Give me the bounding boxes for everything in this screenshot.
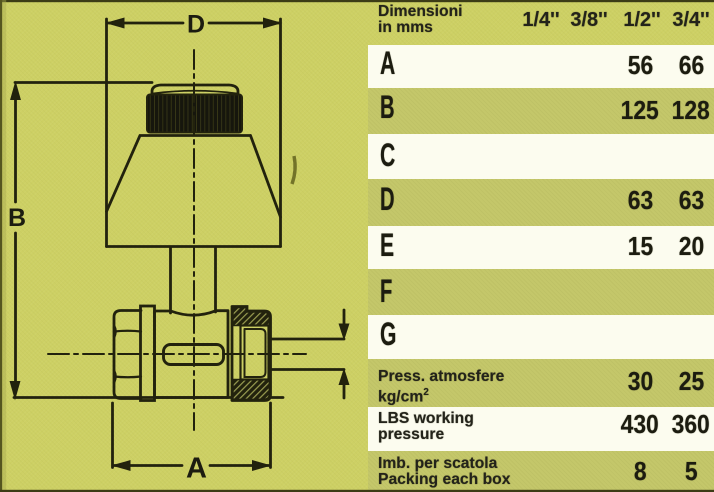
svg-text:B: B [8,204,26,232]
svg-text:D: D [187,11,205,39]
svg-text:A: A [186,453,207,485]
